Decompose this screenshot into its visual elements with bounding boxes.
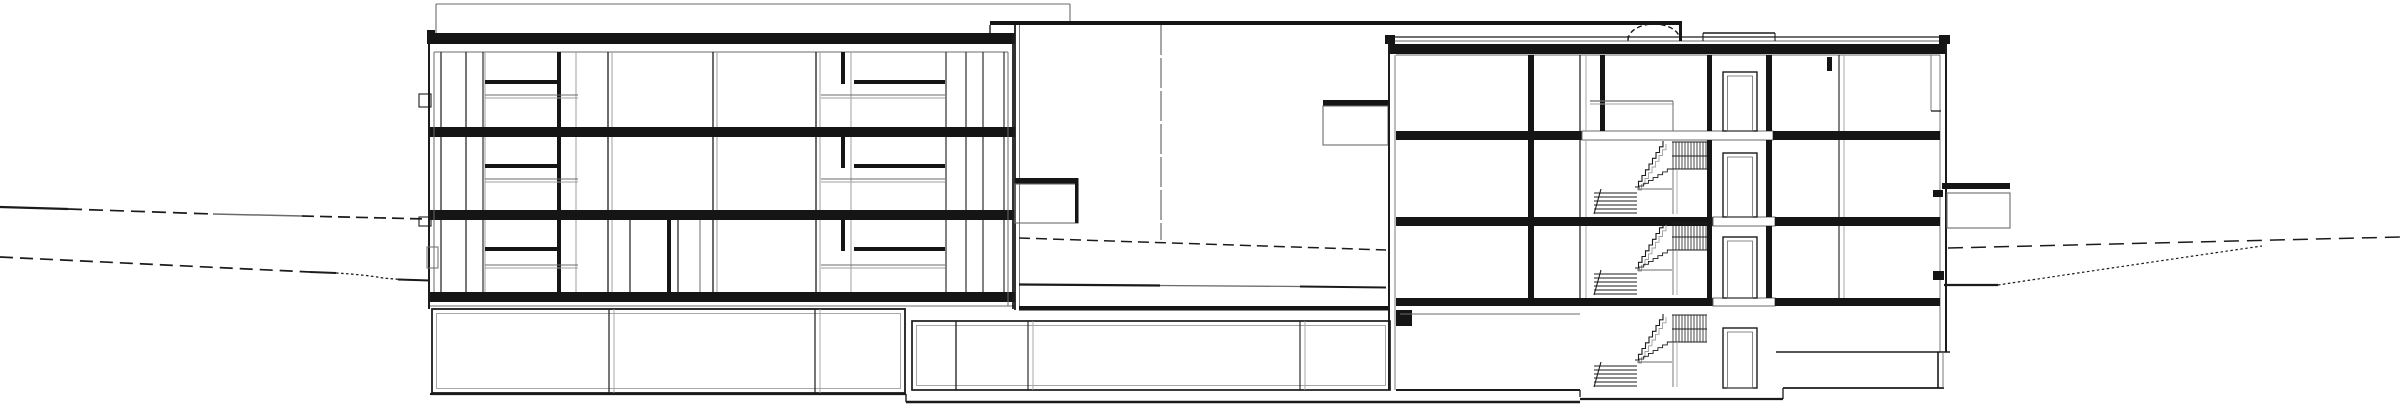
courtyard-wall	[1015, 25, 1388, 311]
left-building	[419, 4, 1070, 402]
building-section-drawing	[0, 0, 2400, 412]
ground-line-right	[1948, 237, 2400, 285]
ground-line-left	[0, 207, 430, 281]
parapet-band	[990, 21, 1680, 41]
right-building	[1385, 21, 2010, 399]
architectural-drawing-sheet	[0, 0, 2400, 412]
